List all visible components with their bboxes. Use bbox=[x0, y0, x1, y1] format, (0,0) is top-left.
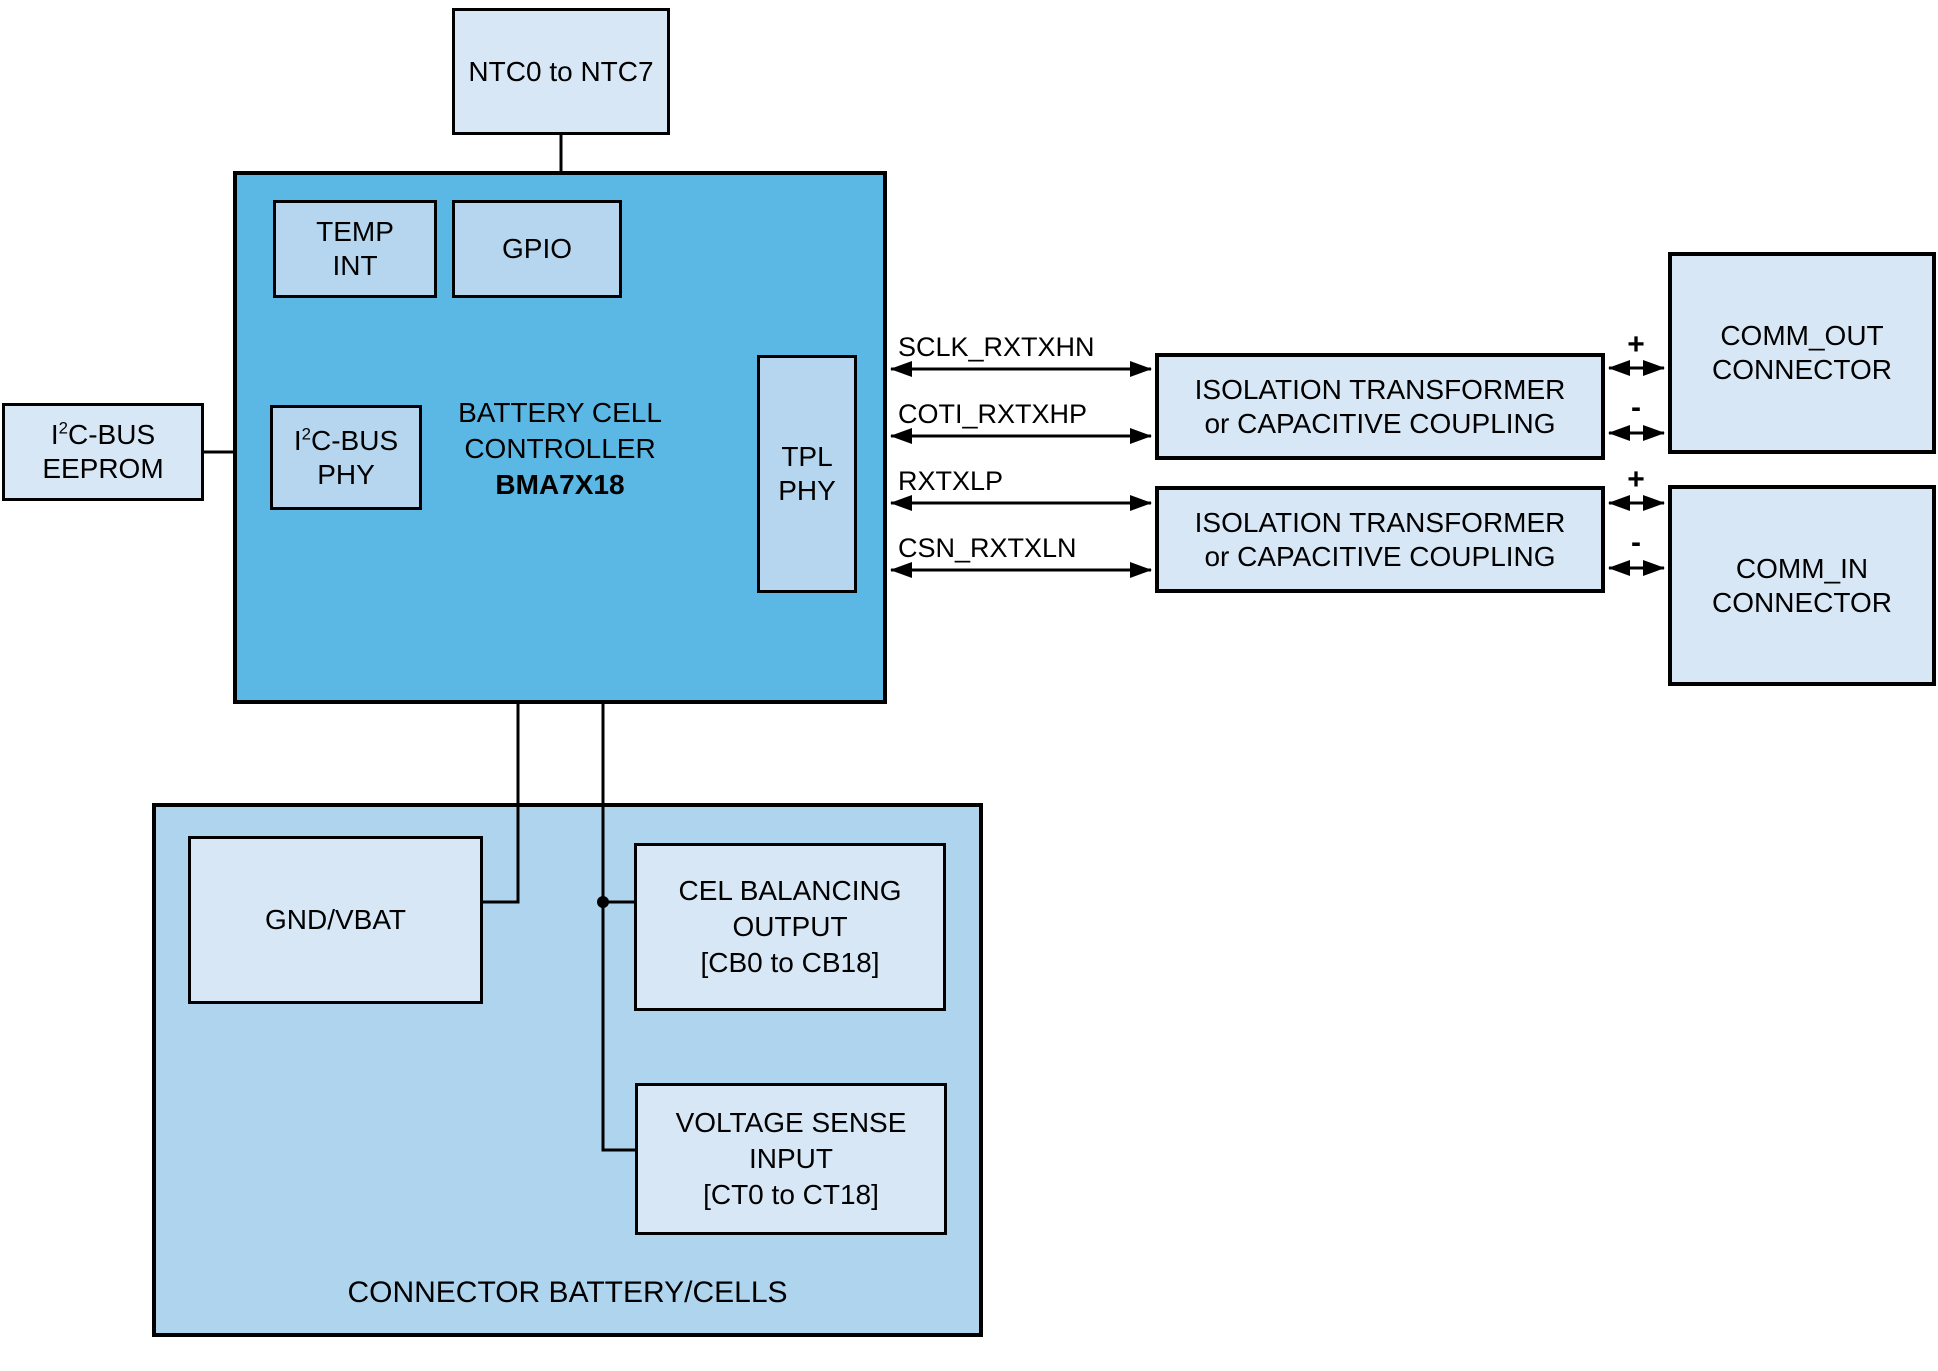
temp-int-line2: INT bbox=[332, 249, 377, 283]
temp-int-box: TEMP INT bbox=[273, 200, 437, 298]
isolation1-line1: ISOLATION TRANSFORMER bbox=[1195, 373, 1566, 407]
i2c-bus-phy-line1: I2C-BUS bbox=[294, 424, 398, 458]
isolation2-line2: or CAPACITIVE COUPLING bbox=[1204, 540, 1555, 574]
i2c-eeprom-line1: I2C-BUS bbox=[51, 418, 155, 452]
comm-out-line1: COMM_OUT bbox=[1720, 319, 1883, 353]
gpio-label: GPIO bbox=[502, 232, 572, 266]
minus-label-out: - bbox=[1606, 393, 1666, 423]
controller-title-line2: CONTROLLER bbox=[420, 431, 700, 467]
controller-title-line1: BATTERY CELL bbox=[420, 395, 700, 431]
connector-battery-cells-label: CONNECTOR BATTERY/CELLS bbox=[152, 1276, 983, 1310]
signal-label-coti-rxtxhp: COTI_RXTXHP bbox=[898, 399, 1087, 430]
gnd-vbat-box: GND/VBAT bbox=[188, 836, 483, 1004]
cell-balancing-range: [CB0 to CB18] bbox=[701, 945, 880, 981]
plus-label-out: + bbox=[1606, 330, 1666, 360]
comm-in-connector-box: COMM_IN CONNECTOR bbox=[1668, 485, 1936, 686]
comm-out-line2: CONNECTOR bbox=[1712, 353, 1892, 387]
signal-label-csn-rxtxln: CSN_RXTXLN bbox=[898, 533, 1077, 564]
cell-balancing-line1: CEL BALANCING bbox=[678, 873, 901, 909]
controller-part-number: BMA7X18 bbox=[420, 467, 700, 503]
signal-label-sclk-rxtxhn: SCLK_RXTXHN bbox=[898, 332, 1095, 363]
comm-in-line1: COMM_IN bbox=[1736, 552, 1868, 586]
voltage-sense-range: [CT0 to CT18] bbox=[703, 1177, 879, 1213]
plus-label-in: + bbox=[1606, 465, 1666, 495]
minus-label-in: - bbox=[1606, 528, 1666, 558]
cell-balancing-output-box: CEL BALANCING OUTPUT [CB0 to CB18] bbox=[634, 843, 946, 1011]
controller-title: BATTERY CELL CONTROLLER BMA7X18 bbox=[420, 395, 700, 503]
ntc-box: NTC0 to NTC7 bbox=[452, 8, 670, 135]
voltage-sense-line2: INPUT bbox=[749, 1141, 833, 1177]
signal-label-rxtxlp: RXTXLP bbox=[898, 466, 1003, 497]
isolation1-line2: or CAPACITIVE COUPLING bbox=[1204, 407, 1555, 441]
comm-out-connector-box: COMM_OUT CONNECTOR bbox=[1668, 252, 1936, 454]
voltage-sense-line1: VOLTAGE SENSE bbox=[676, 1105, 907, 1141]
tpl-phy-box: TPL PHY bbox=[757, 355, 857, 593]
comm-in-line2: CONNECTOR bbox=[1712, 586, 1892, 620]
gnd-vbat-label: GND/VBAT bbox=[265, 903, 406, 937]
block-diagram: NTC0 to NTC7 TEMP INT GPIO I2C-BUS PHY T… bbox=[0, 0, 1938, 1371]
i2c-eeprom-line2: EEPROM bbox=[42, 452, 163, 486]
temp-int-line1: TEMP bbox=[316, 215, 394, 249]
ntc-label: NTC0 to NTC7 bbox=[468, 55, 653, 89]
tpl-phy-line1: TPL bbox=[781, 440, 832, 474]
i2c-eeprom-box: I2C-BUS EEPROM bbox=[2, 403, 204, 501]
isolation2-line1: ISOLATION TRANSFORMER bbox=[1195, 506, 1566, 540]
isolation-transformer-box-1: ISOLATION TRANSFORMER or CAPACITIVE COUP… bbox=[1155, 353, 1605, 460]
i2c-bus-phy-box: I2C-BUS PHY bbox=[270, 405, 422, 510]
isolation-transformer-box-2: ISOLATION TRANSFORMER or CAPACITIVE COUP… bbox=[1155, 486, 1605, 593]
tpl-phy-line2: PHY bbox=[778, 474, 836, 508]
voltage-sense-input-box: VOLTAGE SENSE INPUT [CT0 to CT18] bbox=[635, 1083, 947, 1235]
i2c-bus-phy-line2: PHY bbox=[317, 458, 375, 492]
gpio-box: GPIO bbox=[452, 200, 622, 298]
cell-balancing-line2: OUTPUT bbox=[732, 909, 847, 945]
